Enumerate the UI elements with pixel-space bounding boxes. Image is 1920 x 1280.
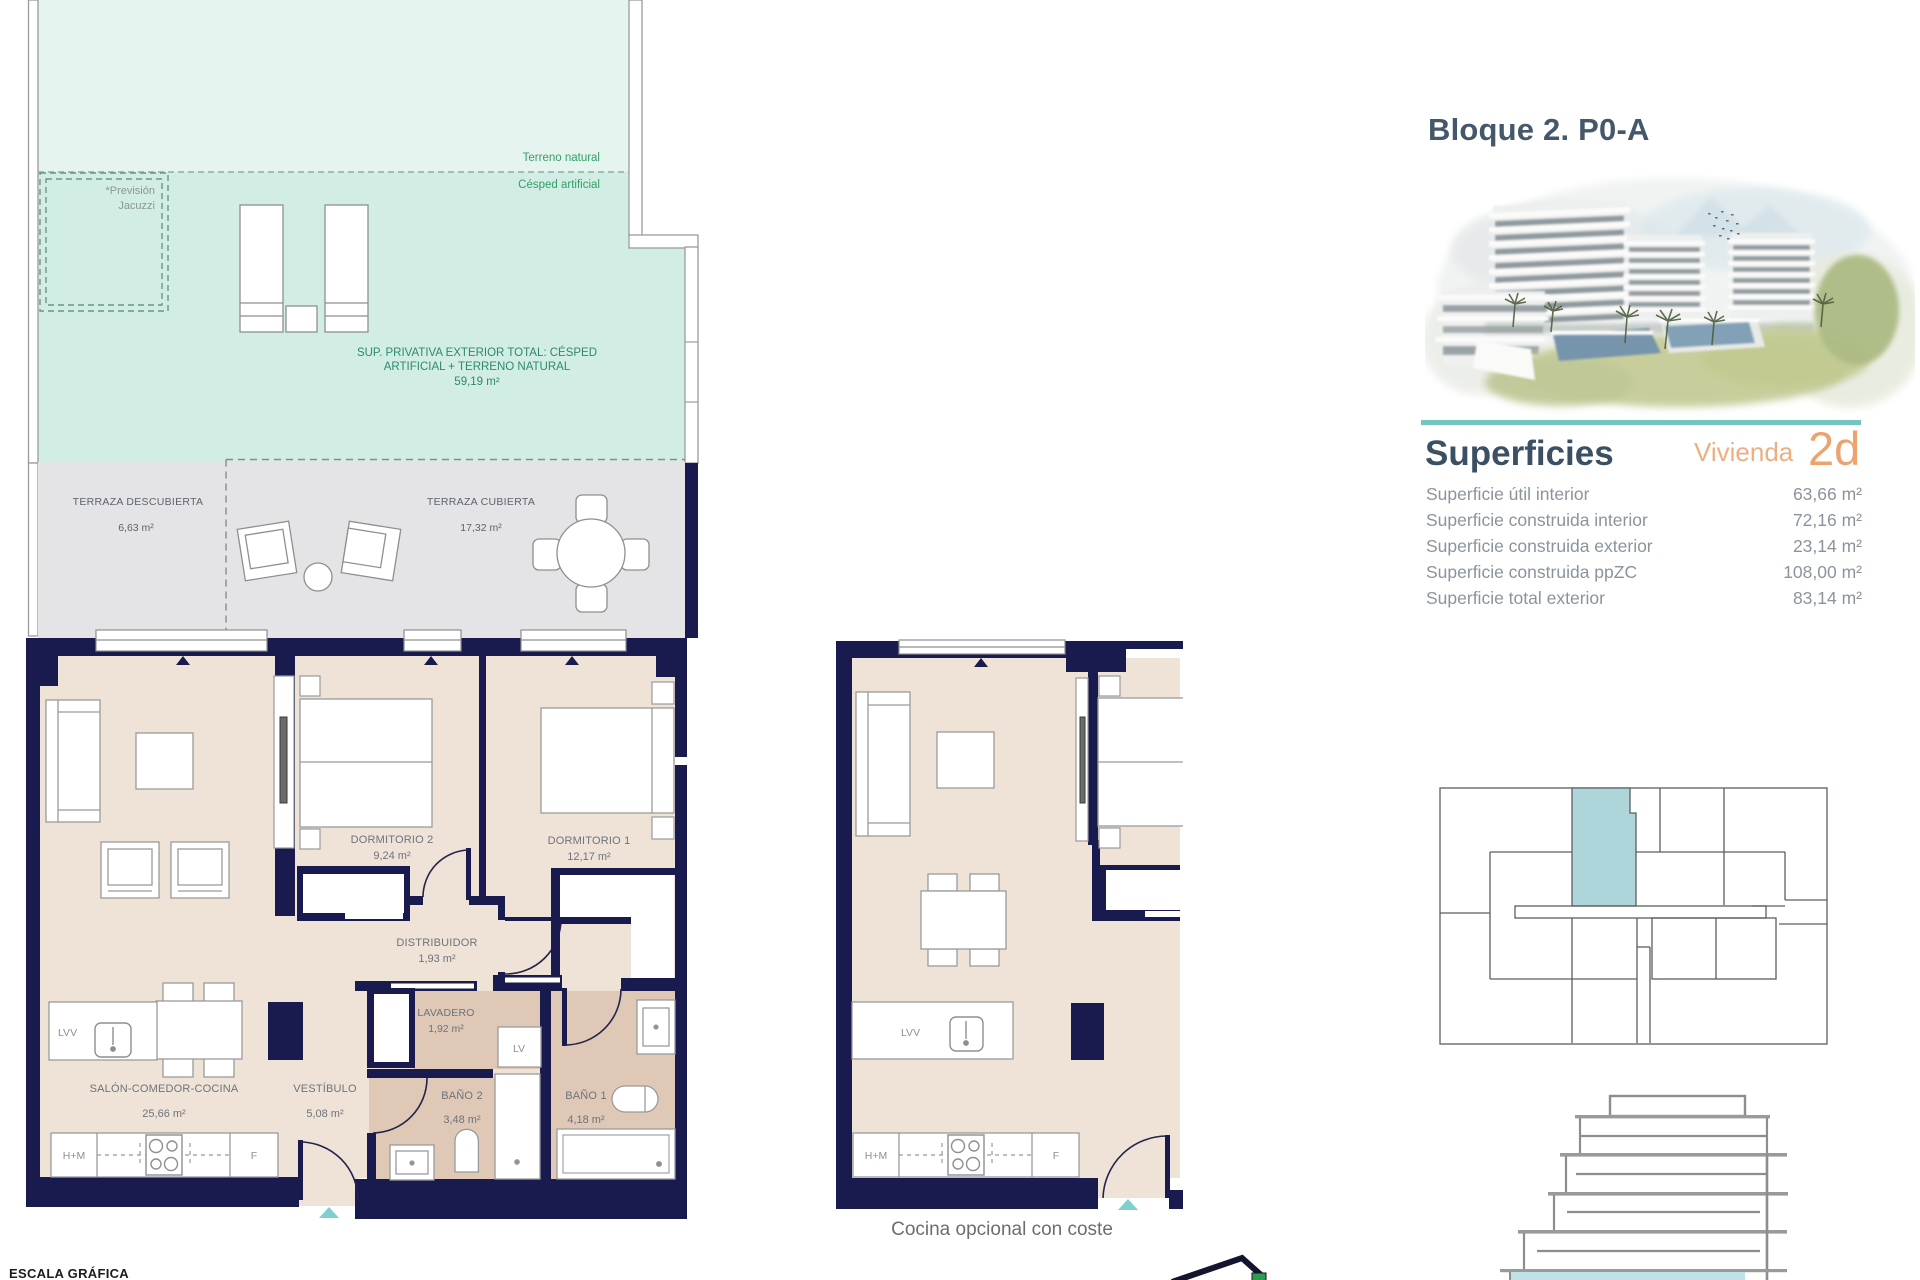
svg-text:TERRAZA DESCUBIERTA: TERRAZA DESCUBIERTA — [73, 496, 204, 508]
svg-text:SUP. PRIVATIVA EXTERIOR TOTAL:: SUP. PRIVATIVA EXTERIOR TOTAL: CÉSPED — [357, 346, 597, 359]
svg-text:LAVADERO: LAVADERO — [417, 1007, 474, 1019]
svg-text:1,92 m²: 1,92 m² — [428, 1023, 464, 1035]
svg-text:BAÑO 1: BAÑO 1 — [565, 1089, 607, 1102]
svg-text:DISTRIBUIDOR: DISTRIBUIDOR — [396, 937, 477, 949]
svg-text:DORMITORIO 2: DORMITORIO 2 — [351, 834, 434, 846]
svg-text:12,17 m²: 12,17 m² — [567, 851, 611, 863]
svg-text:5,08 m²: 5,08 m² — [306, 1108, 344, 1120]
svg-text:H+M: H+M — [63, 1150, 85, 1162]
svg-text:LVV: LVV — [901, 1027, 920, 1039]
svg-text:59,19 m²: 59,19 m² — [454, 376, 500, 388]
svg-text:6,63 m²: 6,63 m² — [118, 522, 154, 534]
svg-text:1,93 m²: 1,93 m² — [418, 953, 456, 965]
svg-text:F: F — [251, 1150, 257, 1162]
svg-text:4,18 m²: 4,18 m² — [567, 1114, 605, 1126]
svg-text:Cocina opcional con coste: Cocina opcional con coste — [891, 1219, 1113, 1240]
svg-text:ESCALA GRÁFICA: ESCALA GRÁFICA — [9, 1266, 129, 1280]
svg-text:Terreno natural: Terreno natural — [523, 152, 600, 164]
svg-text:SALÓN-COMEDOR-COCINA: SALÓN-COMEDOR-COCINA — [90, 1082, 239, 1095]
svg-text:3,48 m²: 3,48 m² — [443, 1114, 481, 1126]
svg-text:*Previsión: *Previsión — [105, 185, 155, 197]
svg-text:H+M: H+M — [865, 1150, 887, 1162]
svg-text:17,32 m²: 17,32 m² — [460, 522, 502, 534]
svg-text:Césped artificial: Césped artificial — [518, 179, 600, 191]
svg-text:BAÑO 2: BAÑO 2 — [441, 1089, 483, 1102]
svg-text:TERRAZA CUBIERTA: TERRAZA CUBIERTA — [427, 496, 535, 508]
svg-text:DORMITORIO 1: DORMITORIO 1 — [548, 835, 631, 847]
svg-text:LVV: LVV — [58, 1027, 77, 1039]
svg-text:Jacuzzi: Jacuzzi — [118, 200, 155, 212]
svg-text:25,66 m²: 25,66 m² — [142, 1108, 186, 1120]
svg-text:ARTIFICIAL + TERRENO NATURAL: ARTIFICIAL + TERRENO NATURAL — [384, 361, 571, 373]
svg-text:VESTÍBULO: VESTÍBULO — [293, 1082, 357, 1095]
svg-text:LV: LV — [513, 1043, 525, 1055]
svg-text:F: F — [1053, 1150, 1059, 1162]
svg-text:9,24 m²: 9,24 m² — [373, 850, 411, 862]
